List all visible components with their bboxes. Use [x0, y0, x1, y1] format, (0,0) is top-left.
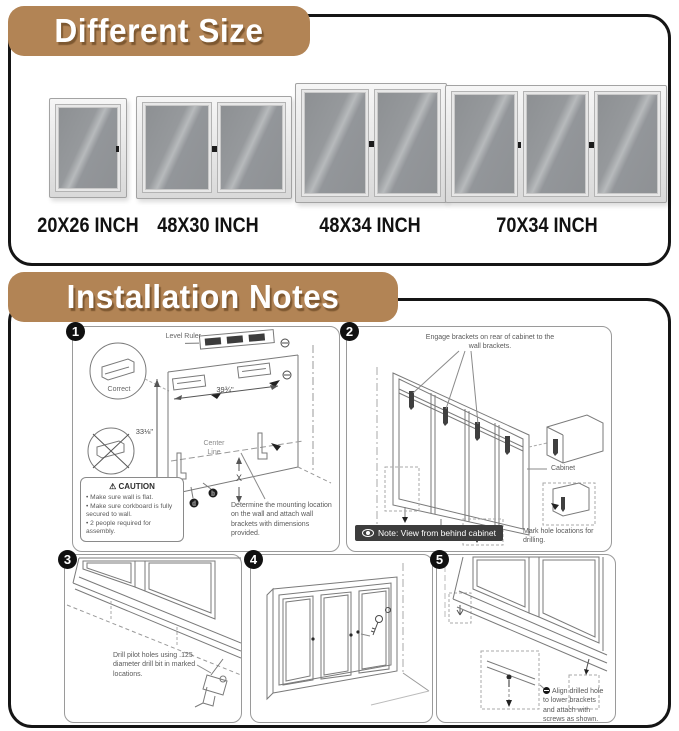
level-ruler-label: Level Ruler [157, 332, 201, 341]
step-4-box: 4 [250, 554, 433, 723]
cabinet-door [451, 91, 518, 197]
step-1-instruction: Determine the mounting location on the w… [231, 501, 333, 539]
mark-holes-label: Mark hole locations for drilling. [523, 527, 599, 546]
callout-rect [385, 467, 419, 511]
lock-icon [591, 142, 594, 148]
step-5-box: 5 [436, 554, 616, 723]
step-3-box: 3 [64, 554, 242, 723]
cabinet-glass [597, 94, 658, 194]
step-1-box: 1 [72, 326, 340, 552]
height-dimension-line [154, 379, 160, 491]
caution-item: 2 people required for assembly. [86, 520, 178, 537]
fastener-key-d: d [192, 502, 195, 508]
step-5-instruction-text: Align drilled hole to lower brackets and… [543, 688, 603, 723]
mark-holes-detail [543, 483, 595, 525]
caution-box: ⚠ CAUTION Make sure wall is flat. Make s… [80, 477, 184, 542]
caution-title: ⚠ CAUTION [86, 482, 178, 491]
step-2-badge: 2 [340, 322, 359, 341]
cabinet-door [142, 102, 212, 193]
height-dimension-label: 33⅛" [125, 427, 153, 436]
step-3-instruction: Drill pilot holes using .125 diameter dr… [113, 651, 201, 679]
screw-callout-icons [281, 339, 291, 379]
x-dimension-label: X [233, 473, 245, 483]
cabinet-glass [145, 105, 209, 190]
step-4-illustration [251, 555, 432, 722]
step-5-badge: 5 [430, 550, 449, 569]
size-label-70x34: 70X34 INCH [495, 214, 598, 238]
lock-icon [518, 142, 521, 148]
cabinet-door [217, 102, 287, 193]
cabinet-glass [526, 94, 587, 194]
screw-callout-detail [481, 651, 539, 709]
cabinet-glass [304, 92, 366, 194]
cabinet-door [523, 91, 590, 197]
size-label-48x34: 48X34 INCH [317, 214, 424, 238]
step-1-badge: 1 [66, 322, 85, 341]
cabinet-48x30 [136, 96, 292, 199]
eye-icon [362, 529, 374, 537]
different-size-title: Different Size [54, 12, 263, 50]
installation-notes-banner: Installation Notes [8, 272, 398, 322]
step-5-instruction: Align drilled hole to lower brackets and… [543, 687, 609, 725]
correct-label: Correct [100, 385, 138, 394]
cabinet-door [594, 91, 661, 197]
caution-list: Make sure wall is flat. Make sure corkbo… [86, 494, 178, 537]
caution-item: Make sure corkboard is fully secured to … [86, 503, 178, 520]
width-dimension-label: 39¾" [205, 385, 245, 394]
lock-icon [214, 146, 217, 152]
product-infographic: Different Size 20X26 INCH 48X30 INCH 48X… [0, 0, 679, 731]
wall-drawing [168, 345, 331, 495]
floor-line [371, 691, 429, 705]
cabinet-door [55, 104, 121, 192]
size-label-48x30: 48X30 INCH [156, 214, 259, 238]
step-2-instruction: Engage brackets on rear of cabinet to th… [425, 333, 555, 352]
size-label-20x26: 20X26 INCH [36, 214, 139, 238]
lower-bracket-left [177, 453, 186, 479]
cabinet-glass [220, 105, 284, 190]
lock-icon [116, 146, 119, 152]
cabinet-48x34 [295, 83, 447, 203]
step-2-box: 2 [346, 326, 612, 552]
cabinet-glass [454, 94, 515, 194]
installation-notes-title: Installation Notes [67, 278, 340, 316]
wall-bracket-left [173, 375, 206, 390]
cabinet-20x26 [49, 98, 127, 198]
bracket-engage-detail [529, 415, 603, 463]
lock-icon [371, 141, 374, 147]
mounted-cabinet-drawing [267, 577, 397, 699]
center-line [171, 441, 303, 461]
floor-line [403, 673, 429, 691]
step-4-badge: 4 [244, 550, 263, 569]
cabinet-glass [58, 107, 118, 189]
warning-icon: ⚠ [109, 482, 116, 491]
cabinet-underside-drawing [453, 557, 607, 671]
cabinet-door [374, 89, 442, 197]
caution-title-text: CAUTION [118, 482, 154, 491]
cabinet-70x34 [445, 85, 667, 203]
step-3-badge: 3 [58, 550, 77, 569]
step-3-illustration [65, 555, 241, 722]
callout-arrow [457, 605, 463, 615]
screw-icon [543, 687, 550, 694]
center-line-label: Center Line [197, 439, 231, 458]
step-2-illustration [347, 327, 611, 551]
note-badge: Note: View from behind cabinet [355, 525, 503, 541]
cabinet-door [301, 89, 369, 197]
note-badge-text: Note: View from behind cabinet [378, 528, 496, 538]
cabinet-underside-drawing [73, 558, 241, 658]
caution-item: Make sure wall is flat. [86, 494, 178, 503]
wall-bracket-right [238, 363, 271, 378]
cabinet-glass [377, 92, 439, 194]
cabinet-label: Cabinet [551, 464, 597, 473]
different-size-banner: Different Size [8, 6, 310, 56]
